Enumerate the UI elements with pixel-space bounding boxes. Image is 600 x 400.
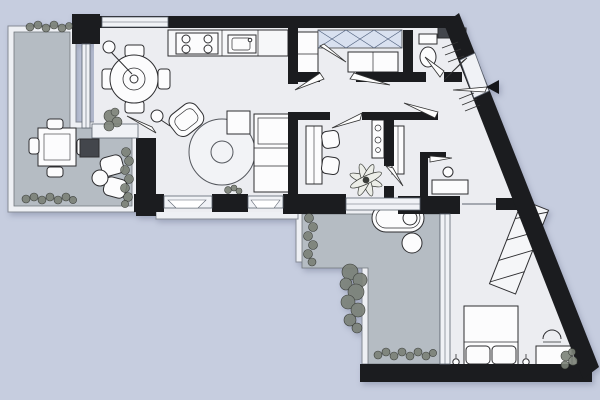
sink-icon (228, 35, 256, 53)
wall-corner-nw (72, 14, 100, 44)
round-side-table (92, 170, 108, 186)
double-bed (464, 306, 518, 370)
wall-bottom (360, 364, 592, 382)
window-west (82, 44, 90, 128)
window-south-2 (248, 196, 283, 208)
bedroom-window-wall (440, 214, 450, 364)
grill-table (80, 139, 99, 157)
window-top-left (102, 17, 168, 27)
wall-bathroom-west (403, 30, 413, 72)
cooktop-icon (176, 33, 218, 54)
built-in-wardrobe (318, 30, 402, 48)
study-desk (306, 126, 322, 184)
floor-plan-image (0, 0, 600, 400)
floor-plan-svg (0, 0, 600, 400)
wall-living-dressing (288, 28, 298, 84)
plant-side-table (227, 111, 250, 134)
terrace-glass-door (346, 198, 420, 210)
wall-alcove (420, 152, 428, 198)
pouf (402, 233, 422, 253)
desk-chair-2 (321, 156, 340, 175)
desk-chair-1 (321, 130, 340, 149)
dressing-low-cabinet (348, 52, 398, 72)
window-south-1 (164, 196, 212, 208)
toilet-icon (419, 34, 437, 67)
slim-shelf (372, 120, 384, 158)
